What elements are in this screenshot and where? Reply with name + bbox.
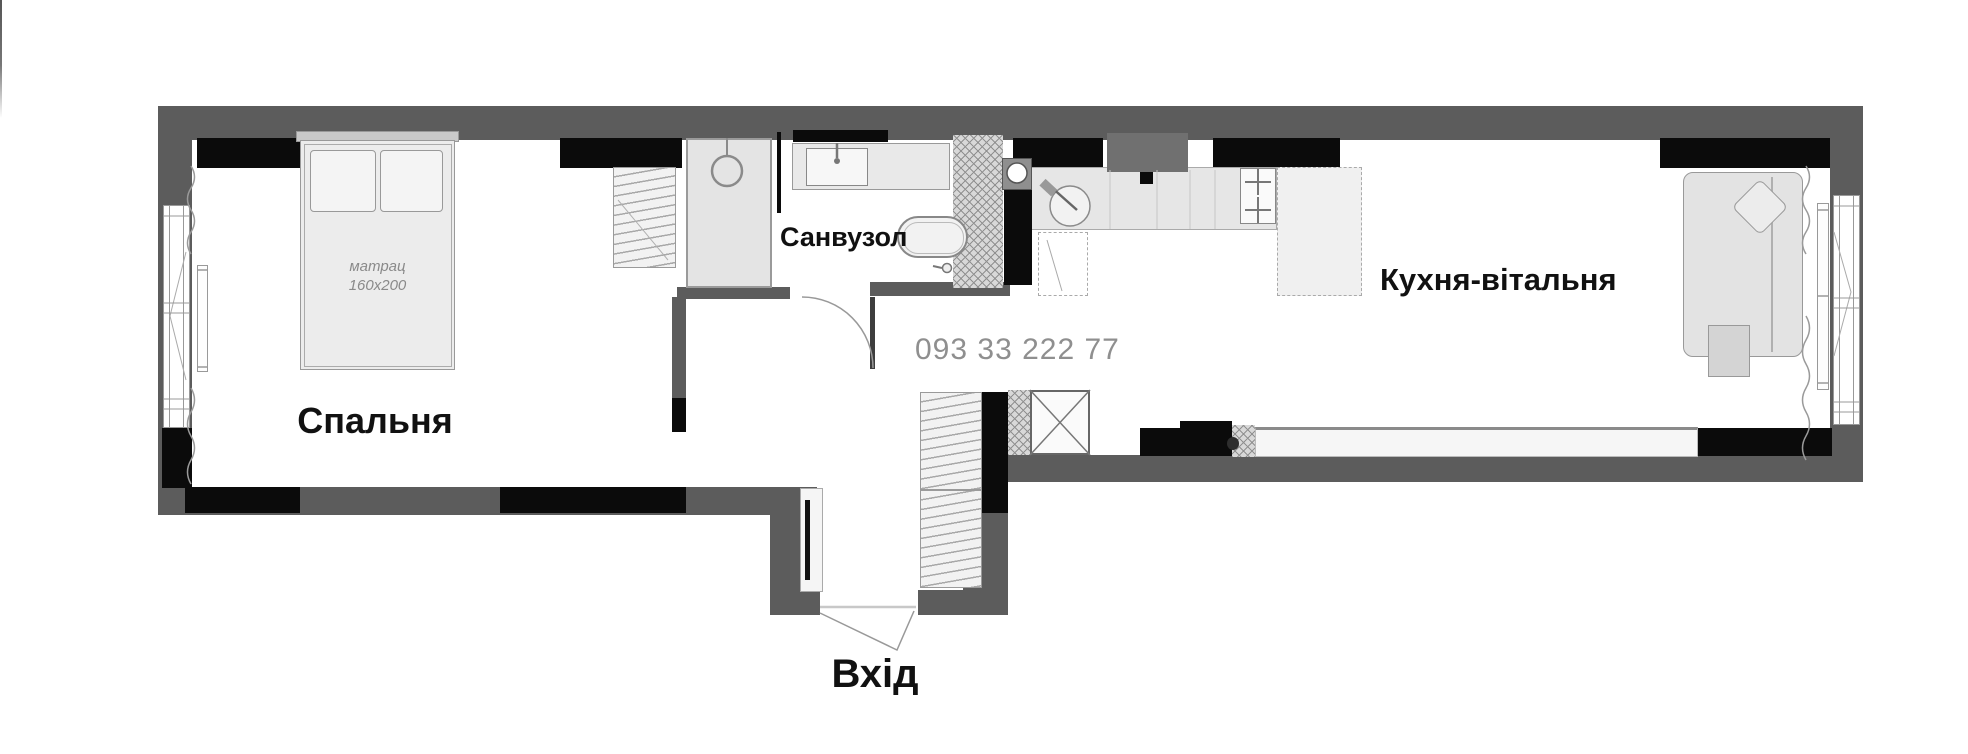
wall-black-bedroom-bottom-2	[500, 487, 686, 513]
radiator-icon-right	[1817, 203, 1829, 390]
mirror-glass-line	[805, 500, 810, 580]
room-label-bedroom: Спальня	[270, 400, 480, 442]
wall-black-living-bottom-1	[1140, 428, 1232, 456]
curtain-icon	[1803, 166, 1810, 254]
wall-bedroom-bath-divider	[672, 297, 686, 400]
wall-bedroom-bath-divider-black	[672, 398, 686, 432]
window-left	[163, 205, 190, 428]
radiator-icon-left	[197, 265, 208, 372]
wall-living-bottom	[993, 455, 1863, 482]
mattress-label: матрац 160x200	[300, 258, 455, 296]
window-left-frame-line	[169, 205, 170, 428]
wardrobe-icon-bedroom	[613, 167, 676, 268]
room-label-kitchen-living: Кухня-вітальня	[1380, 262, 1610, 298]
toilet-tap-icon	[943, 264, 952, 273]
side-table-icon	[1708, 325, 1750, 377]
wall-black-top-4	[1213, 138, 1340, 168]
kitchen-tall-unit	[1004, 190, 1032, 285]
mirror-icon-hall	[800, 488, 823, 592]
dishwasher-dashed-box	[1038, 232, 1088, 296]
duct-black-square	[1140, 172, 1153, 184]
wall-black-top-5	[1660, 138, 1830, 168]
bathtub-inner	[903, 222, 964, 254]
entry-door-gap	[820, 588, 918, 617]
vanity-basin	[806, 148, 868, 186]
window-left-frame-line2	[183, 205, 184, 428]
vanity-mirror-bar	[793, 130, 888, 142]
wardrobe-icon-hall-top	[920, 392, 982, 490]
tall-cabinets-dashed-box	[1277, 167, 1362, 296]
plumbing-wall-bathroom	[953, 135, 1003, 288]
pillow-icon	[380, 150, 443, 212]
bathroom-door-leaf	[870, 297, 875, 369]
pillow-icon	[310, 150, 376, 212]
wall-under-shower	[677, 287, 790, 299]
room-label-entrance: Вхід	[800, 652, 950, 697]
window-right-frame-line2	[1853, 195, 1854, 425]
wall-black-living-bottom-1-step	[1180, 421, 1232, 430]
wall-black-top-2	[560, 138, 682, 168]
plumbing-strip-shaft	[1008, 390, 1030, 455]
page-edge-line	[0, 0, 2, 118]
bathtub-icon	[897, 216, 968, 258]
wall-black-top-1	[197, 138, 300, 168]
room-label-bathroom: Санвузол	[780, 222, 907, 253]
wall-hall-bottom-left	[770, 590, 820, 615]
wall-black-bedroom-bottom-1	[185, 487, 300, 513]
door-arc-icon	[802, 297, 873, 368]
wardrobe-icon-hall-bottom	[920, 490, 982, 588]
column-dot	[1227, 437, 1239, 450]
shower-icon	[686, 138, 772, 288]
tub-spout	[933, 266, 942, 268]
wall-black-left	[162, 428, 192, 488]
living-low-window-band	[1255, 427, 1698, 457]
wall-black-hall-right	[982, 392, 1008, 513]
window-right-frame-line	[1839, 195, 1840, 425]
wall-black-living-bottom-2	[1698, 428, 1832, 456]
phone-watermark: 093 33 222 77	[915, 333, 1120, 367]
vent-duct-block	[1107, 133, 1188, 172]
boiler-icon	[1002, 158, 1032, 190]
floor-plan-canvas: матрац 160x200	[0, 0, 1968, 754]
wall-stub-shower-vanity	[777, 132, 781, 213]
window-right	[1833, 195, 1860, 425]
stove-icon	[1240, 168, 1276, 224]
shaft-x-icon	[1030, 390, 1090, 455]
